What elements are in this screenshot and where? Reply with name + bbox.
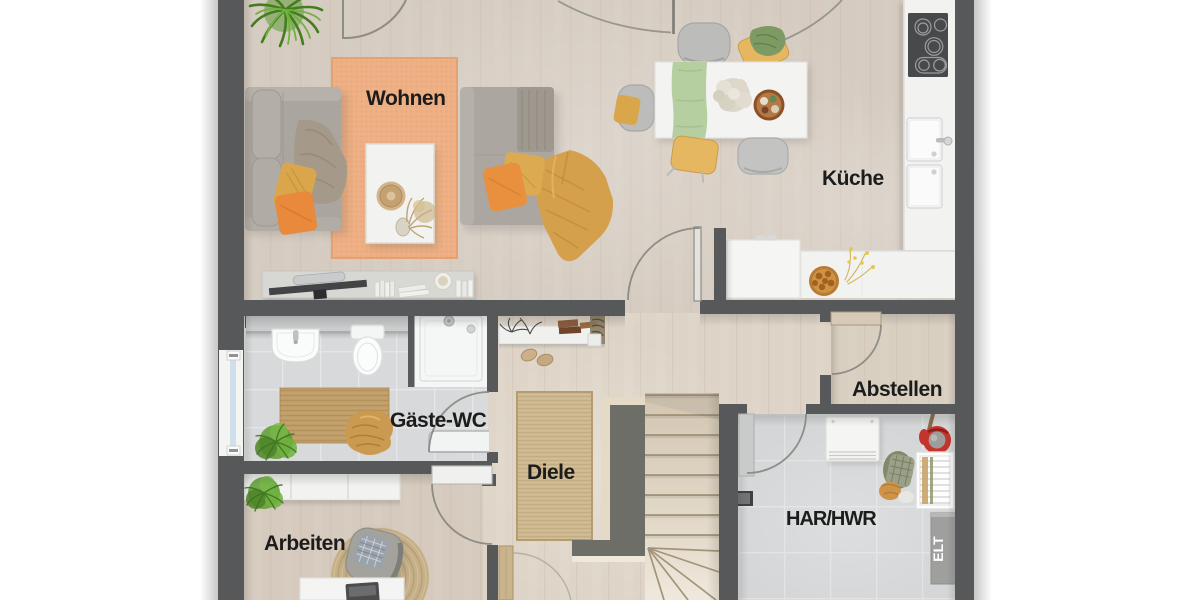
svg-text:Abstellen: Abstellen: [852, 378, 942, 401]
svg-text:HAR/HWR: HAR/HWR: [786, 508, 877, 530]
svg-text:Küche: Küche: [822, 167, 884, 190]
svg-text:Arbeiten: Arbeiten: [264, 532, 345, 555]
svg-text:Diele: Diele: [527, 461, 575, 484]
svg-text:Wohnen: Wohnen: [366, 87, 445, 110]
svg-text:ELT: ELT: [930, 536, 946, 562]
svg-text:Gäste-WC: Gäste-WC: [390, 409, 487, 432]
